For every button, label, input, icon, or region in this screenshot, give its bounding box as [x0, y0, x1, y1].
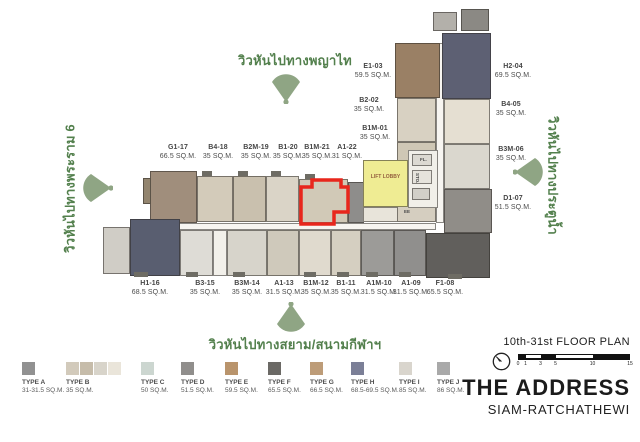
- legend-swatch: [181, 362, 194, 375]
- brand-subtitle: SIAM-RATCHATHEWI: [460, 402, 630, 417]
- balcony-decor-3: [305, 174, 315, 179]
- legend-swatch: [66, 362, 79, 375]
- lift-lobby-label: LIFT LOBBY: [364, 174, 407, 180]
- legend-swatch: [351, 362, 364, 375]
- balcony-decor-6: [304, 272, 316, 277]
- legend-item-type-i: TYPE I85 SQ.M.: [399, 362, 426, 395]
- unit-label-a1-22: A1-2231 SQ.M.: [315, 143, 379, 161]
- scale-tick-1: 1: [524, 361, 527, 367]
- unit-block-b4-18: [197, 176, 233, 222]
- balcony-decor-4: [186, 272, 198, 277]
- unit-label-b1m-01: B1M-0135 SQ.M.: [343, 124, 407, 142]
- legend-item-type-b: TYPE B35 SQ.M.: [66, 362, 121, 395]
- legend-item-type-a: TYPE A31-31.5 SQ.M.: [22, 362, 64, 395]
- scale-tick-10: 10: [590, 361, 596, 367]
- core-label-ee: EE: [404, 209, 410, 214]
- legend-swatch: [399, 362, 412, 375]
- balcony-decor-2: [271, 171, 281, 176]
- legend-item-type-c: TYPE C50 SQ.M.: [141, 362, 168, 395]
- balcony-decor-7: [337, 272, 349, 277]
- legend-item-type-h: TYPE H68.5-69.5 SQ.M.: [351, 362, 399, 395]
- legend-item-type-f: TYPE F65.5 SQ.M.: [268, 362, 301, 395]
- brand-title: THE ADDRESS: [460, 375, 630, 401]
- unit-block-b1m-12: [299, 230, 331, 276]
- unit-block-a1m-10: [361, 230, 394, 276]
- balcony-decor-0: [202, 171, 212, 176]
- unit-label-d1-07: D1-0751.5 SQ.M.: [481, 194, 545, 212]
- unit-block-b1m-21: [299, 179, 348, 223]
- unit-block-b2m-19: [233, 176, 266, 222]
- unit-block-corridor-h: [150, 223, 436, 230]
- legend-item-type-e: TYPE E59.5 SQ.M.: [225, 362, 258, 395]
- unit-block-b1-20: [266, 176, 299, 222]
- floor-plan-title: 10th-31st FLOOR PLAN: [460, 336, 630, 348]
- scale-tick-0: 0: [517, 361, 520, 367]
- unit-block-b1-11: [331, 230, 361, 276]
- legend-item-type-d: TYPE D51.5 SQ.M.: [181, 362, 214, 395]
- unit-block-a1-22: [348, 182, 364, 223]
- unit-block-h1-16: [130, 219, 180, 276]
- legend-swatch: [141, 362, 154, 375]
- legend-swatch: [437, 362, 450, 375]
- unit-block-core-cell-3: [412, 188, 430, 200]
- scale-tick-3: 3: [539, 361, 542, 367]
- unit-block-roof-1: [433, 12, 457, 31]
- unit-block-b3-15: [180, 230, 213, 276]
- scale-tick-5: 5: [554, 361, 557, 367]
- unit-label-b2-02: B2-0235 SQ.M.: [337, 96, 401, 114]
- north-compass-icon: [492, 352, 511, 371]
- legend-swatch: [310, 362, 323, 375]
- balcony-decor-5: [233, 272, 245, 277]
- unit-block-roof-2: [461, 9, 489, 31]
- core-label-fl: FL.: [420, 157, 427, 162]
- legend-item-type-g: TYPE G66.5 SQ.M.: [310, 362, 343, 395]
- unit-label-b3m-06: B3M-0635 SQ.M.: [479, 145, 543, 163]
- legend-swatch: [268, 362, 281, 375]
- floor-plan-page: วิวหันไปทางพญาไท วิวหันไปทางพระราม 6 วิว…: [0, 0, 640, 442]
- balcony-decor-9: [399, 272, 411, 277]
- unit-block-f1-08: [426, 233, 490, 278]
- unit-block-g1-17: [150, 171, 197, 223]
- legend-swatch: [80, 362, 93, 375]
- legend-swatch: [94, 362, 107, 375]
- unit-block-g1-17-step: [143, 178, 151, 204]
- balcony-decor-8: [366, 272, 378, 277]
- legend-swatch: [108, 362, 121, 375]
- balcony-decor-1: [238, 171, 248, 176]
- unit-block-lift-lobby: [363, 160, 408, 207]
- unit-block-b3m-14: [227, 230, 267, 276]
- unit-block-annex: [103, 227, 130, 274]
- unit-label-e1-03: E1-0359.5 SQ.M.: [341, 62, 405, 80]
- unit-label-b4-05: B4-0535 SQ.M.: [479, 100, 543, 118]
- core-label-sto: STO.: [415, 173, 420, 183]
- scale-tick-15: 15: [627, 361, 633, 367]
- unit-label-f1-08: F1-0865.5 SQ.M.: [413, 279, 477, 297]
- unit-label-h2-04: H2-0469.5 SQ.M.: [481, 62, 545, 80]
- unit-block-stairwell: [213, 230, 227, 276]
- balcony-decor-11: [134, 272, 148, 277]
- legend-swatch: [22, 362, 35, 375]
- title-block: 10th-31st FLOOR PLAN 01351015 THE ADDRES…: [460, 336, 630, 417]
- unit-block-a1-09: [394, 230, 426, 276]
- legend-swatch: [225, 362, 238, 375]
- unit-block-a1-13: [267, 230, 299, 276]
- scale-bar: 01351015: [518, 354, 630, 370]
